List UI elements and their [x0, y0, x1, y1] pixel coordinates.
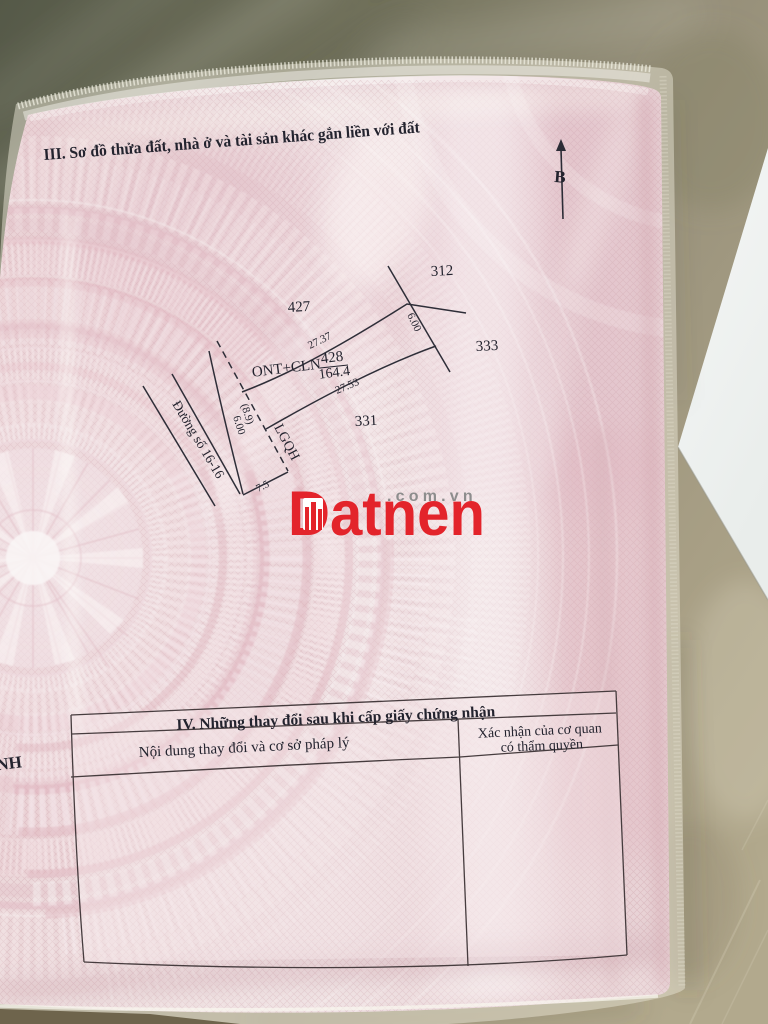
svg-text:333: 333 [475, 338, 498, 355]
svg-text:331: 331 [354, 413, 377, 430]
svg-text:NH: NH [0, 752, 23, 774]
svg-text:B: B [554, 167, 567, 187]
svg-text:427: 427 [287, 299, 311, 316]
svg-text:312: 312 [430, 263, 453, 280]
